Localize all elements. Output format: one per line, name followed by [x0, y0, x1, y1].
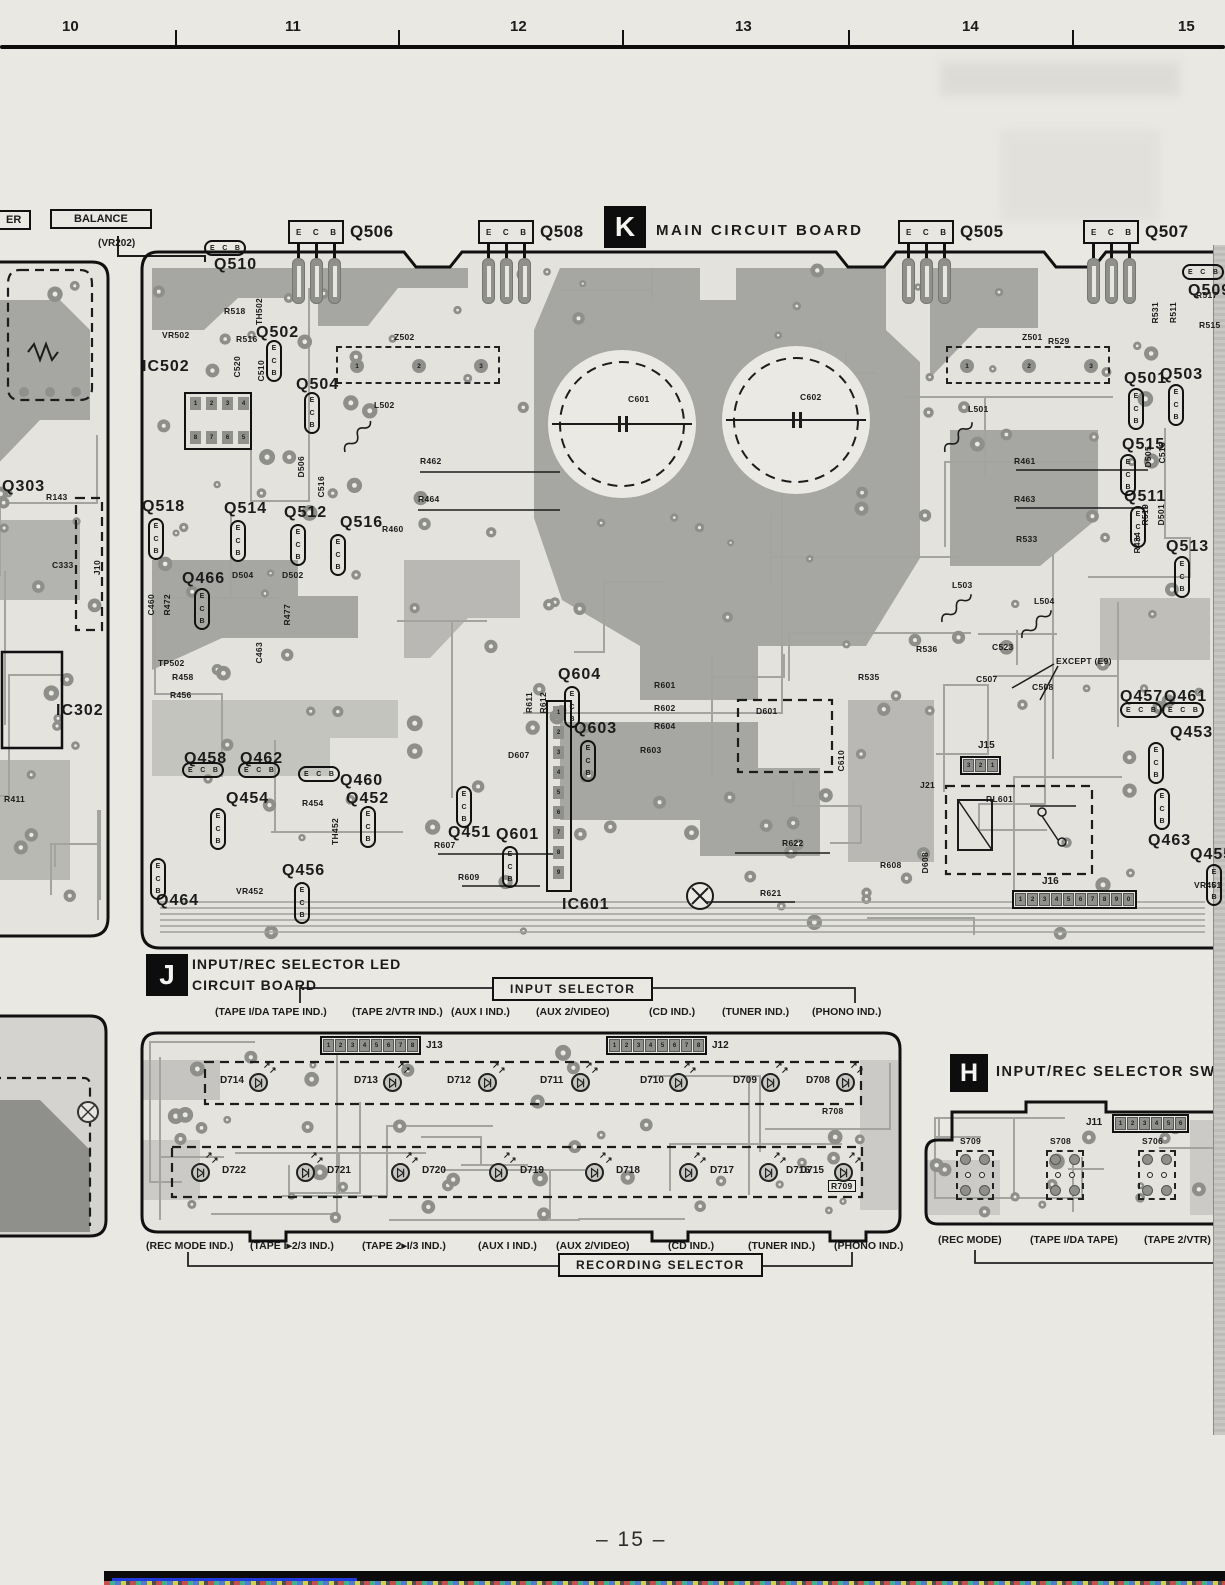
indicator-caption: (AUX 2/VIDEO) — [536, 1006, 610, 1018]
ic-pin: 9 — [553, 866, 564, 879]
balance-label-box: BALANCE — [50, 209, 152, 229]
transistor-pins-capsule: ECB — [290, 524, 306, 566]
ic-pin: 3 — [222, 397, 233, 410]
component-label: R607 — [434, 840, 456, 850]
led-symbol — [249, 1073, 268, 1092]
transistor-pins-capsule: ECB — [330, 534, 346, 576]
transistor-lead — [907, 244, 910, 258]
connector-label: J16 — [1042, 876, 1059, 887]
component-label: R472 — [162, 594, 172, 616]
z-pin: 2 — [412, 359, 426, 373]
component-label: Q518 — [142, 498, 185, 516]
led-label: D712 — [447, 1075, 471, 1086]
connector-pin: 8 — [693, 1039, 704, 1052]
z-network-box: 123 — [336, 346, 500, 384]
component-label: Q453 — [1170, 724, 1213, 742]
transistor-pins-capsule: ECB — [1206, 864, 1222, 906]
component-label: R529 — [1048, 336, 1070, 346]
component-label: Q601 — [496, 826, 539, 844]
component-label: C507 — [976, 674, 998, 684]
component-label: R463 — [1014, 494, 1036, 504]
indicator-caption: (CD IND.) — [649, 1006, 695, 1018]
led-symbol — [478, 1073, 497, 1092]
transistor-header-box: ECB — [898, 220, 954, 244]
component-label: Q512 — [284, 504, 327, 522]
component-label: R516 — [236, 334, 258, 344]
transistor-pins-capsule: ECB — [304, 392, 320, 434]
component-label: R611 — [524, 692, 534, 713]
ruler-number: 11 — [285, 18, 301, 35]
led-ray-icon: ↗ — [498, 1065, 506, 1076]
connector-pin: 7 — [1087, 893, 1098, 906]
indicator-caption: (TUNER IND.) — [748, 1240, 815, 1252]
component-label: Z501 — [1022, 332, 1043, 342]
component-label: J21 — [920, 780, 935, 790]
connector-pin: 1 — [323, 1039, 334, 1052]
component-label: EXCEPT (E9) — [1056, 656, 1112, 666]
led-ray-icon: ↗ — [854, 1155, 862, 1166]
led-label: D720 — [422, 1165, 446, 1176]
connector-label: J11 — [1086, 1117, 1102, 1128]
led-symbol — [489, 1163, 508, 1182]
transistor-pad — [920, 258, 933, 304]
component-label: R462 — [420, 456, 442, 466]
indicator-caption: (TAPE I/DA TAPE IND.) — [215, 1006, 327, 1018]
component-label: R411 — [4, 794, 25, 804]
transistor-header-label: Q505 — [960, 222, 1004, 242]
section-h-title: INPUT/REC SELECTOR SWITCH — [996, 1064, 1225, 1080]
transistor-pins-capsule: ECB — [298, 766, 340, 782]
ic-pin: 6 — [222, 431, 233, 444]
transistor-lead — [1128, 244, 1131, 258]
connector-pin: 3 — [1139, 1117, 1150, 1130]
component-label: D607 — [508, 750, 530, 760]
transistor-pad — [310, 258, 323, 304]
led-symbol — [191, 1163, 210, 1182]
transistor-pins-capsule: ECB — [1154, 788, 1170, 830]
component-label: VR452 — [236, 886, 264, 896]
connector-pin: 1 — [1115, 1117, 1126, 1130]
component-label: C602 — [800, 392, 822, 402]
transistor-pins-capsule: ECB — [266, 340, 282, 382]
connector-pin: 3 — [347, 1039, 358, 1052]
led-ray-icon: ↗ — [781, 1065, 789, 1076]
switch-label: S706 — [1142, 1136, 1163, 1146]
connector-pin: 5 — [371, 1039, 382, 1052]
transistor-pins-capsule: ECB — [204, 240, 246, 256]
component-label: R622 — [782, 838, 804, 848]
ic-ic502: 12348765 — [184, 392, 252, 450]
connector-pin: 0 — [1123, 893, 1134, 906]
connector-pin: 6 — [1175, 1117, 1186, 1130]
indicator-caption: (AUX I IND.) — [451, 1006, 510, 1018]
led-ray-icon: ↗ — [856, 1065, 864, 1076]
connector-pin: 2 — [1127, 1117, 1138, 1130]
component-label: R454 — [302, 798, 324, 808]
component-label: L502 — [374, 400, 395, 410]
ruler-number: 15 — [1178, 18, 1195, 35]
vr202-label: (VR202) — [98, 238, 135, 249]
transistor-header-box: ECB — [1083, 220, 1139, 244]
transistor-lead — [523, 244, 526, 258]
component-label: R535 — [858, 672, 880, 682]
component-label: D506 — [296, 456, 306, 478]
ic-ic601: 123456789 — [546, 700, 572, 892]
transistor-pad — [292, 258, 305, 304]
component-label: R533 — [1016, 534, 1038, 544]
component-label: C520 — [232, 356, 242, 378]
transistor-pad — [482, 258, 495, 304]
component-label: IC502 — [142, 358, 190, 376]
connector-j16: 1234567890 — [1012, 890, 1137, 909]
ic-pin: 8 — [190, 431, 201, 444]
connector-pin: 4 — [1151, 1117, 1162, 1130]
ic-pin: 1 — [553, 706, 564, 719]
connector-pin: 5 — [1163, 1117, 1174, 1130]
connector-pin: 7 — [395, 1039, 406, 1052]
connector-pin: 2 — [621, 1039, 632, 1052]
component-label: R518 — [224, 306, 246, 316]
connector-pin: 7 — [681, 1039, 692, 1052]
component-label: Q466 — [182, 570, 225, 588]
component-label: C463 — [254, 642, 264, 664]
transistor-lead — [333, 244, 336, 258]
component-label: R609 — [458, 872, 480, 882]
component-label: R511 — [1168, 302, 1178, 323]
component-label: R464 — [418, 494, 440, 504]
transistor-lead — [1110, 244, 1113, 258]
connector-pin: 2 — [335, 1039, 346, 1052]
ruler-number: 12 — [510, 18, 527, 35]
connector-pin: 6 — [383, 1039, 394, 1052]
led-label: D708 — [806, 1075, 830, 1086]
led-symbol — [669, 1073, 688, 1092]
component-label: R708 — [822, 1106, 844, 1116]
page-bleed-smudge — [1000, 130, 1160, 220]
indicator-caption: (TUNER IND.) — [722, 1006, 789, 1018]
led-label: D711 — [540, 1075, 563, 1086]
component-label: Q503 — [1160, 366, 1203, 384]
page-edge-strip — [1213, 245, 1225, 1435]
transistor-lead — [943, 244, 946, 258]
ruler-tick — [848, 30, 850, 45]
ic-pin: 7 — [206, 431, 217, 444]
led-ray-icon: ↗ — [689, 1065, 697, 1076]
transistor-pins-capsule: ECB — [1162, 702, 1204, 718]
section-k-badge: K — [604, 206, 646, 248]
switch-s706 — [1138, 1150, 1176, 1200]
component-label: R460 — [382, 524, 404, 534]
transistor-pins-capsule: ECB — [1128, 388, 1144, 430]
transistor-pins-capsule: ECB — [230, 520, 246, 562]
connector-pin: 4 — [359, 1039, 370, 1052]
component-label: R477 — [282, 604, 292, 626]
z-pin: 3 — [474, 359, 488, 373]
led-symbol — [761, 1073, 780, 1092]
component-label: Q504 — [296, 376, 339, 394]
led-symbol — [836, 1073, 855, 1092]
transistor-pad — [1105, 258, 1118, 304]
transistor-header-label: Q508 — [540, 222, 584, 242]
component-label: C460 — [146, 594, 156, 616]
led-ray-icon: ↗ — [403, 1065, 411, 1076]
indicator-caption: (TAPE I▸2/3 IND.) — [250, 1240, 334, 1252]
switch-label: S709 — [960, 1136, 981, 1146]
ruler-tick — [398, 30, 400, 45]
led-ray-icon: ↗ — [211, 1155, 219, 1166]
component-label: R603 — [640, 745, 662, 755]
transistor-lead — [925, 244, 928, 258]
ruler-number: 13 — [735, 18, 752, 35]
transistor-pins-capsule: ECB — [238, 762, 280, 778]
transistor-lead — [487, 244, 490, 258]
led-label: D709 — [733, 1075, 757, 1086]
component-label: R604 — [654, 721, 676, 731]
ic-pin: 7 — [553, 826, 564, 839]
connector-pin: 8 — [407, 1039, 418, 1052]
connector-pin: 5 — [657, 1039, 668, 1052]
component-label: RL601 — [986, 794, 1013, 804]
page-bleed-smudge — [940, 62, 1180, 96]
ic-pin: 4 — [553, 766, 564, 779]
ic-pin: 1 — [190, 397, 201, 410]
z-pin: 1 — [350, 359, 364, 373]
component-label: D608 — [920, 852, 930, 874]
switch-caption: (REC MODE) — [938, 1234, 1002, 1246]
led-label: D714 — [220, 1075, 244, 1086]
z-pin: 1 — [960, 359, 974, 373]
scan-blue-line — [112, 1578, 357, 1581]
led-symbol — [585, 1163, 604, 1182]
component-label: L504 — [1034, 596, 1055, 606]
switch-s708 — [1046, 1150, 1084, 1200]
led-label: D722 — [222, 1165, 246, 1176]
z-pin: 3 — [1084, 359, 1098, 373]
transistor-lead — [505, 244, 508, 258]
component-label: R456 — [170, 690, 192, 700]
component-label: C601 — [628, 394, 650, 404]
switch-label: S708 — [1050, 1136, 1071, 1146]
component-label: Q604 — [558, 666, 601, 684]
component-label: C610 — [836, 750, 846, 772]
connector-pin: 1 — [987, 759, 998, 772]
transistor-pins-capsule: ECB — [1120, 454, 1136, 496]
transistor-header-label: Q506 — [350, 222, 394, 242]
ruler-tick — [175, 30, 177, 45]
led-label: D715 — [800, 1165, 824, 1176]
connector-pin: 3 — [1039, 893, 1050, 906]
transistor-pins-capsule: ECB — [1148, 742, 1164, 784]
led-label: D717 — [710, 1165, 734, 1176]
transistor-pins-capsule: ECB — [294, 882, 310, 924]
ruler-number: 14 — [962, 18, 979, 35]
section-h-badge: H — [950, 1054, 988, 1092]
led-symbol — [759, 1163, 778, 1182]
connector-pin: 4 — [1051, 893, 1062, 906]
ic-pin: 5 — [553, 786, 564, 799]
transistor-pins-capsule: ECB — [456, 786, 472, 828]
ruler-line — [0, 45, 1225, 49]
indicator-caption: (REC MODE IND.) — [146, 1240, 234, 1252]
connector-pin: 6 — [1075, 893, 1086, 906]
component-label: R608 — [880, 860, 902, 870]
transistor-pins-capsule: ECB — [210, 808, 226, 850]
component-label: R621 — [760, 888, 782, 898]
component-label: R461 — [1014, 456, 1036, 466]
component-label: Q460 — [340, 772, 383, 790]
transistor-pins-capsule: ECB — [1182, 264, 1224, 280]
transistor-pins-capsule: ECB — [148, 518, 164, 560]
connector-pin: 1 — [609, 1039, 620, 1052]
connector-j13: 12345678 — [320, 1036, 421, 1055]
transistor-pins-capsule: ECB — [502, 846, 518, 888]
led-symbol — [571, 1073, 590, 1092]
input-selector-callout: INPUT SELECTOR — [492, 977, 653, 1001]
indicator-caption: (AUX I IND.) — [478, 1240, 537, 1252]
connector-pin: 2 — [1027, 893, 1038, 906]
connector-label: J12 — [712, 1040, 729, 1051]
section-j-badge: J — [146, 954, 188, 996]
component-label: L503 — [952, 580, 973, 590]
transistor-header-box: ECB — [288, 220, 344, 244]
connector-pin: 6 — [669, 1039, 680, 1052]
transistor-pad — [938, 258, 951, 304]
component-label: R517 — [1196, 290, 1218, 300]
ic-pin: 2 — [206, 397, 217, 410]
component-label: Z502 — [394, 332, 415, 342]
connector-pin: 1 — [1015, 893, 1026, 906]
component-label: C523 — [992, 642, 1014, 652]
component-label: TH452 — [330, 818, 340, 845]
transistor-pad — [1087, 258, 1100, 304]
component-label: Q454 — [226, 790, 269, 808]
led-ray-icon: ↗ — [411, 1155, 419, 1166]
transistor-pins-capsule: ECB — [1168, 384, 1184, 426]
indicator-caption: (TAPE 2/VTR IND.) — [352, 1006, 443, 1018]
transistor-pad — [500, 258, 513, 304]
connector-j15: 321 — [960, 756, 1001, 775]
component-label: Q516 — [340, 514, 383, 532]
connector-j12: 12345678 — [606, 1036, 707, 1055]
led-ray-icon: ↗ — [269, 1065, 277, 1076]
transistor-pins-capsule: ECB — [580, 740, 596, 782]
transistor-header-label: Q507 — [1145, 222, 1189, 242]
ruler-number: 10 — [62, 18, 79, 35]
connector-pin: 3 — [963, 759, 974, 772]
z-pin: 2 — [1022, 359, 1036, 373]
led-symbol — [296, 1163, 315, 1182]
service-manual-page: K MAIN CIRCUIT BOARD J INPUT/REC SELECTO… — [0, 0, 1225, 1585]
led-label: D721 — [327, 1165, 351, 1176]
z-network-box: 123 — [946, 346, 1110, 384]
transistor-pins-capsule: ECB — [1174, 556, 1190, 598]
transistor-pins-capsule: ECB — [150, 858, 166, 900]
section-k-title: MAIN CIRCUIT BOARD — [656, 222, 864, 239]
switch-caption: (TAPE 2/VTR) — [1144, 1234, 1211, 1246]
ic-pin: 3 — [553, 746, 564, 759]
component-label: Q456 — [282, 862, 325, 880]
transistor-pins-capsule: ECB — [1120, 702, 1162, 718]
transistor-pad — [518, 258, 531, 304]
transistor-pins-capsule: ECB — [182, 762, 224, 778]
component-label: C333 — [52, 560, 74, 570]
component-label: J10 — [92, 560, 102, 575]
led-ray-icon: ↗ — [699, 1155, 707, 1166]
component-label: C516 — [316, 476, 326, 498]
component-label: R531 — [1150, 302, 1160, 324]
indicator-caption: (TAPE 2▸I/3 IND.) — [362, 1240, 446, 1252]
component-label: C515 — [1157, 442, 1167, 464]
led-ray-icon: ↗ — [591, 1065, 599, 1076]
component-label: Q463 — [1148, 832, 1191, 850]
component-label: Q514 — [224, 500, 267, 518]
connector-pin: 9 — [1111, 893, 1122, 906]
component-label: R458 — [172, 672, 194, 682]
ruler-tick — [1072, 30, 1074, 45]
indicator-caption: (CD IND.) — [668, 1240, 714, 1252]
ic-pin: 5 — [238, 431, 249, 444]
led-label: D719 — [520, 1165, 544, 1176]
transistor-pad — [328, 258, 341, 304]
transistor-header-box: ECB — [478, 220, 534, 244]
led-label: D713 — [354, 1075, 378, 1086]
indicator-caption: (PHONO IND.) — [812, 1006, 881, 1018]
transistor-pins-capsule: ECB — [360, 806, 376, 848]
component-label: D504 — [232, 570, 254, 580]
led-ray-icon: ↗ — [316, 1155, 324, 1166]
component-label: R601 — [654, 680, 676, 690]
ruler-tick — [622, 30, 624, 45]
indicator-caption: (PHONO IND.) — [834, 1240, 903, 1252]
component-label: C508 — [1032, 682, 1054, 692]
connector-label: J13 — [426, 1040, 443, 1051]
recording-selector-callout: RECORDING SELECTOR — [558, 1253, 763, 1277]
component-label: Q513 — [1166, 538, 1209, 556]
component-label: R515 — [1199, 320, 1221, 330]
component-label: TH502 — [254, 298, 264, 325]
component-label: R602 — [654, 703, 676, 713]
ic-pin: 4 — [238, 397, 249, 410]
led-symbol — [391, 1163, 410, 1182]
connector-pin: 5 — [1063, 893, 1074, 906]
led-label: D718 — [616, 1165, 640, 1176]
component-label: C510 — [256, 360, 266, 382]
transistor-pad — [1123, 258, 1136, 304]
ic-pin: 2 — [553, 726, 564, 739]
transistor-pins-capsule: ECB — [1130, 506, 1146, 548]
component-label: L501 — [968, 404, 989, 414]
component-label: R536 — [916, 644, 938, 654]
component-label: D501 — [1156, 504, 1166, 526]
switch-caption: (TAPE I/DA TAPE) — [1030, 1234, 1118, 1246]
connector-pin: 2 — [975, 759, 986, 772]
indicator-caption: (AUX 2/VIDEO) — [556, 1240, 630, 1252]
er-label-box: ER — [0, 210, 31, 230]
transistor-lead — [315, 244, 318, 258]
led-symbol — [679, 1163, 698, 1182]
component-label: IC601 — [562, 896, 610, 914]
led-ray-icon: ↗ — [605, 1155, 613, 1166]
led-symbol — [383, 1073, 402, 1092]
connector-label: J15 — [978, 740, 995, 751]
transistor-pad — [902, 258, 915, 304]
transistor-pins-capsule: ECB — [194, 588, 210, 630]
component-label: IC302 — [56, 702, 104, 720]
component-label: Q510 — [214, 256, 257, 274]
led-label: D710 — [640, 1075, 664, 1086]
ic-pin: 8 — [553, 846, 564, 859]
component-label: Q303 — [2, 478, 45, 496]
